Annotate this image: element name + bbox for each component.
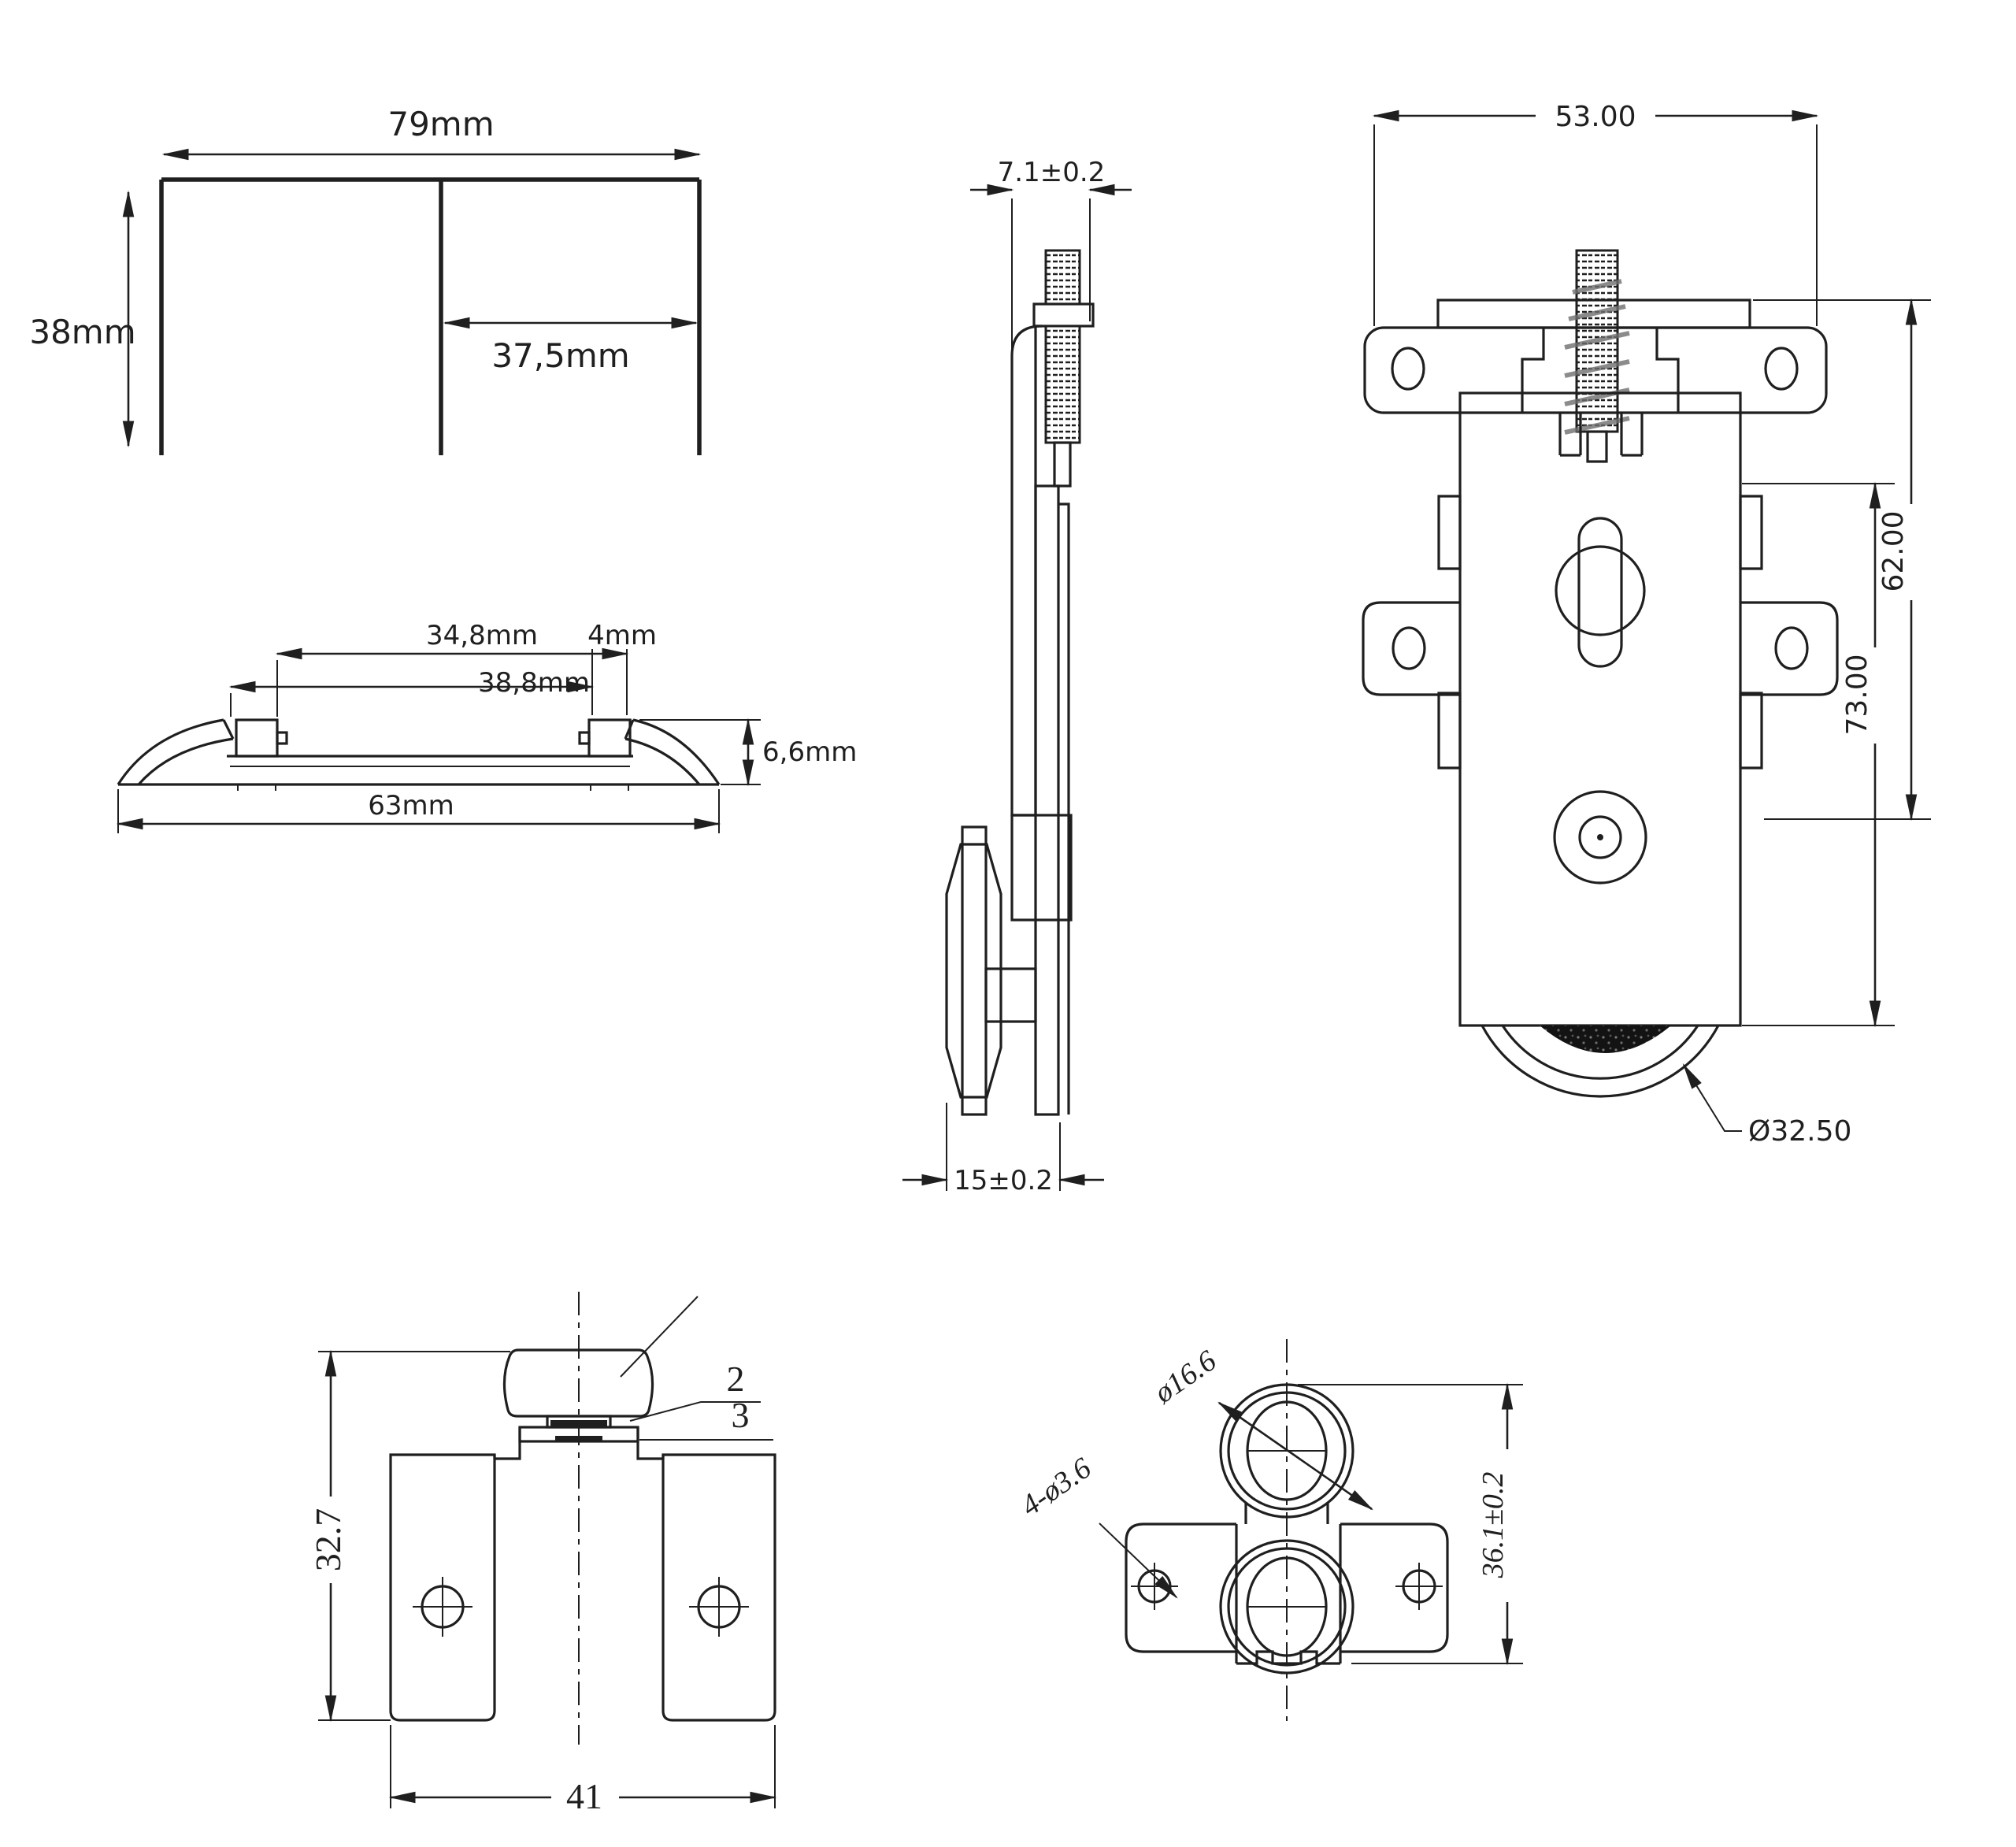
guide-wing-right xyxy=(1340,1524,1447,1652)
dim-label-inner-span: 34,8mm xyxy=(426,620,538,651)
dim-label-wheel-diameter: Ø32.50 xyxy=(1748,1115,1851,1148)
dim-label-thickness: 15±0.2 xyxy=(954,1165,1053,1196)
stud-tip xyxy=(1588,432,1606,462)
extension-lines-rail-height xyxy=(639,720,761,784)
stud-flange xyxy=(1034,304,1093,326)
adjustment-slot xyxy=(1579,518,1621,666)
roller-washer-band xyxy=(550,1420,607,1426)
dim-label-channel-width: 37,5mm xyxy=(491,336,629,375)
dim-label-rail-height: 6,6mm xyxy=(762,736,857,768)
tab-hole-left xyxy=(1393,628,1425,669)
bottom-rail-profile-view: 34,8mm 4mm 38,8mm 6,6mm 63mm xyxy=(118,620,857,833)
adjustment-cam xyxy=(1556,547,1644,635)
bottom-bracket-view: 32.7 2 3 41 xyxy=(308,1292,775,1816)
dim-label-upper-height: 62.00 xyxy=(1877,510,1910,592)
pedestal-pad-band xyxy=(555,1436,602,1441)
dim-label-upper-height-wrap: 62.00 xyxy=(1877,510,1910,592)
axle-boss xyxy=(986,969,1036,1022)
dim-line-roller-diameter xyxy=(1219,1403,1372,1509)
carriage-column-edge xyxy=(1058,504,1069,1115)
callout-label-3: 3 xyxy=(732,1395,750,1435)
wheel-side-profile xyxy=(947,844,1001,1097)
roller-housing-body xyxy=(1460,393,1740,1025)
dim-label-plate-width: 53.00 xyxy=(1555,101,1636,133)
clamp-block xyxy=(1012,815,1071,920)
rail-left-tongue xyxy=(236,720,277,756)
dim-label-roller-diameter: ø16.6 xyxy=(1147,1344,1222,1410)
dim-label-overall-height-wrap: 73.00 xyxy=(1841,654,1873,735)
dim-label-bracket-width: 41 xyxy=(566,1776,602,1816)
twin-guide-view: ø16.6 4-ø3.6 36.1±0.2 xyxy=(1015,1339,1523,1721)
side-tab-right xyxy=(1740,603,1837,695)
rail-right-tongue xyxy=(589,720,630,756)
dim-label-bracket-height-wrap: 32.7 xyxy=(308,1508,348,1572)
rail-right-nub xyxy=(580,732,589,744)
dim-label-guide-height-wrap: 36.1±0.2 xyxy=(1477,1472,1510,1579)
leader-wheel-diameter xyxy=(1684,1065,1742,1131)
extension-lines-overall-height xyxy=(1742,484,1895,1025)
dim-label-mount-holes-wrap: 4-ø3.6 xyxy=(1015,1452,1097,1523)
tab-hole-right xyxy=(1776,628,1807,669)
leg-hole-cross-right xyxy=(689,1577,749,1637)
roller-side-view: 7.1±0.2 15±0.2 xyxy=(902,157,1132,1196)
dim-label-track-height: 38mm xyxy=(29,313,135,351)
dim-label-outer-span: 38,8mm xyxy=(478,667,590,699)
roller-front-view: 53.00 Ø32.50 62.00 xyxy=(1363,101,1931,1148)
leader-roller xyxy=(621,1296,698,1377)
side-plate xyxy=(1012,326,1042,815)
dim-label-roller-diameter-wrap: ø16.6 xyxy=(1147,1344,1222,1410)
plate-hole-left xyxy=(1392,348,1424,389)
threaded-stud-side xyxy=(1046,250,1080,304)
wing-hole-cross-right xyxy=(1395,1563,1443,1610)
dim-label-overall-height: 73.00 xyxy=(1841,654,1873,735)
wheel-tread-hatch xyxy=(1540,1025,1671,1053)
top-track-profile-view: 79mm 38mm 37,5mm xyxy=(29,105,699,455)
threaded-section-side xyxy=(1046,326,1080,443)
axle-center xyxy=(1597,834,1603,840)
track-profile-outline xyxy=(161,180,699,455)
dim-label-stud-offset: 7.1±0.2 xyxy=(998,157,1106,188)
dim-label-track-width: 79mm xyxy=(387,105,494,143)
leg-hole-cross-left xyxy=(413,1577,472,1637)
drawing-canvas: 79mm 38mm 37,5mm 34,8mm 4mm 38,8mm 6,6mm… xyxy=(0,0,2016,1847)
rail-left-flare xyxy=(118,720,233,784)
wheel-tread-band xyxy=(962,827,986,1115)
dim-label-rail-total-width: 63mm xyxy=(368,790,454,822)
dim-label-mount-holes: 4-ø3.6 xyxy=(1015,1452,1097,1523)
housing-side-ribs xyxy=(1439,496,1762,768)
dim-label-bracket-height: 32.7 xyxy=(308,1508,348,1572)
adjuster-block xyxy=(1054,443,1070,486)
technical-drawing-sheet: 79mm 38mm 37,5mm 34,8mm 4mm 38,8mm 6,6mm… xyxy=(0,0,2016,1847)
dim-label-rail-width: 4mm xyxy=(587,620,657,651)
side-tab-left xyxy=(1363,603,1460,695)
carriage-column xyxy=(1036,486,1058,1115)
guide-wing-left xyxy=(1126,1524,1236,1652)
dim-label-guide-height: 36.1±0.2 xyxy=(1477,1472,1510,1579)
wing-hole-cross-left xyxy=(1131,1563,1178,1610)
plate-hole-right xyxy=(1766,348,1797,389)
rail-right-flare xyxy=(625,720,719,784)
rail-left-nub xyxy=(277,732,287,744)
callout-label-2: 2 xyxy=(727,1359,745,1399)
